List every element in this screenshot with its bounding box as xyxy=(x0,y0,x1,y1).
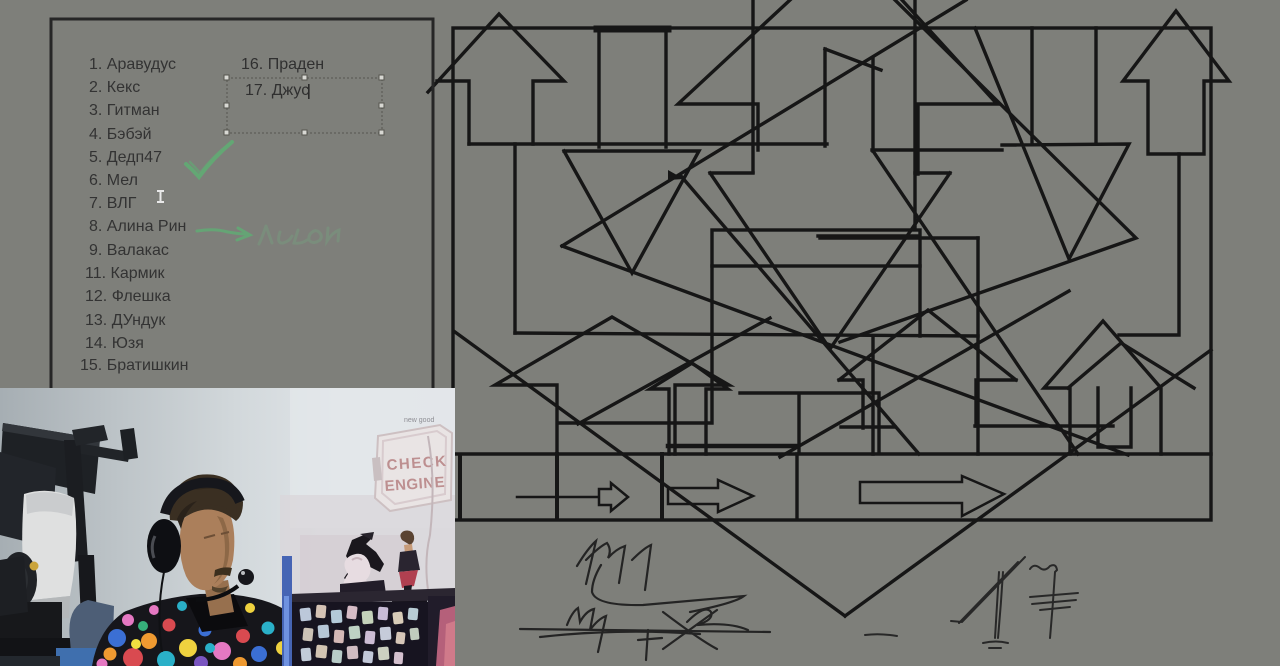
svg-text:17. Джус: 17. Джус xyxy=(245,82,309,99)
svg-text:9. Валакас: 9. Валакас xyxy=(89,242,169,259)
svg-text:14. Юзя: 14. Юзя xyxy=(85,335,144,352)
svg-text:3. Гитман: 3. Гитман xyxy=(89,102,160,119)
svg-text:13. ДУндук: 13. ДУндук xyxy=(85,312,166,329)
svg-text:1. Аравудус: 1. Аравудус xyxy=(89,56,176,73)
svg-text:2. Кекс: 2. Кекс xyxy=(89,79,140,96)
svg-text:11. Кармик: 11. Кармик xyxy=(85,265,166,282)
svg-text:16. Праден: 16. Праден xyxy=(241,56,324,73)
svg-text:5. Дедп47: 5. Дедп47 xyxy=(89,149,162,166)
svg-text:new good: new good xyxy=(404,417,434,424)
svg-text:4. Бэбэй: 4. Бэбэй xyxy=(89,126,152,143)
svg-text:6. Мел: 6. Мел xyxy=(89,172,138,189)
svg-text:8. Алина Рин: 8. Алина Рин xyxy=(89,218,186,235)
svg-text:12. Флешка: 12. Флешка xyxy=(85,288,171,305)
svg-text:15. Братишкин: 15. Братишкин xyxy=(80,357,189,374)
svg-text:7. ВЛГ: 7. ВЛГ xyxy=(89,195,137,212)
